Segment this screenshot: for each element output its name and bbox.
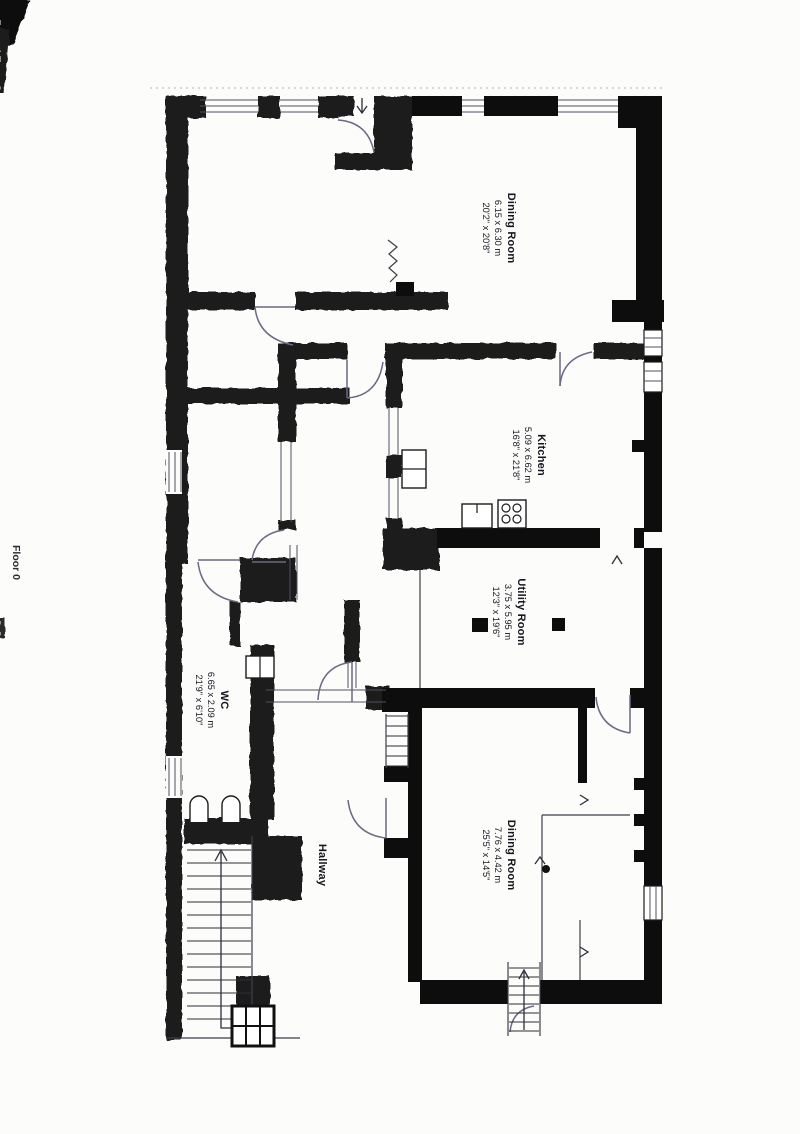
svg-text:6.15 x 6.30 m: 6.15 x 6.30 m	[493, 200, 503, 257]
svg-text:Hallway: Hallway	[316, 844, 328, 887]
svg-text:16'8" x 21'8": 16'8" x 21'8"	[511, 430, 521, 481]
wc-toilet-icon	[222, 796, 240, 822]
room-label-kitchen: Kitchen 5.09 x 6.62 m 16'8" x 21'8"	[511, 427, 547, 484]
stairs-secondary	[509, 968, 539, 1031]
room-label-wc: WC 6.65 x 2.09 m 21'9" x 6'10"	[194, 672, 230, 729]
scan-artifacts	[0, 0, 30, 638]
pencil-walls	[166, 96, 644, 1040]
hall-ladder-hatch	[386, 714, 408, 768]
svg-text:3.75 x 5.95 m: 3.75 x 5.95 m	[503, 584, 513, 641]
svg-text:Utility Room: Utility Room	[515, 578, 527, 645]
svg-text:Kitchen: Kitchen	[535, 434, 547, 476]
svg-text:21'9" x 6'10": 21'9" x 6'10"	[194, 675, 204, 726]
grid-window	[232, 1006, 274, 1046]
room-label-dining-room-1: Dining Room 6.15 x 6.30 m 20'2" x 20'8"	[481, 193, 517, 264]
svg-text:5.09 x 6.62 m: 5.09 x 6.62 m	[523, 427, 533, 484]
fixtures	[190, 450, 550, 873]
svg-text:Floor 0: Floor 0	[10, 545, 22, 580]
floor-label: Floor 0	[10, 545, 22, 580]
svg-text:WC: WC	[218, 691, 230, 710]
door-arc-entry	[338, 120, 374, 152]
wc-toilet-icon	[190, 796, 208, 822]
svg-text:25'5" x 14'5": 25'5" x 14'5"	[481, 830, 491, 881]
svg-text:6.65 x 2.09 m: 6.65 x 2.09 m	[206, 672, 216, 729]
svg-text:Dining Room: Dining Room	[505, 193, 517, 264]
svg-text:20'2" x 20'8": 20'2" x 20'8"	[481, 203, 491, 254]
radiator-icon	[388, 240, 397, 282]
room-label-utility-room: Utility Room 3.75 x 5.95 m 12'3" x 19'6"	[491, 578, 527, 645]
scanned-floorplan-page: Dining Room 6.15 x 6.30 m 20'2" x 20'8" …	[0, 0, 800, 1134]
svg-text:7.76 x 4.42 m: 7.76 x 4.42 m	[493, 827, 503, 884]
svg-text:12'3" x 19'6": 12'3" x 19'6"	[491, 587, 501, 638]
svg-text:Dining Room: Dining Room	[505, 820, 517, 891]
floor-plan-canvas: Dining Room 6.15 x 6.30 m 20'2" x 20'8" …	[0, 0, 800, 1134]
hob-icon	[498, 500, 526, 528]
column-dot	[542, 865, 550, 873]
room-label-hallway: Hallway	[316, 844, 328, 887]
room-label-dining-room-2: Dining Room 7.76 x 4.42 m 25'5" x 14'5"	[481, 820, 517, 891]
